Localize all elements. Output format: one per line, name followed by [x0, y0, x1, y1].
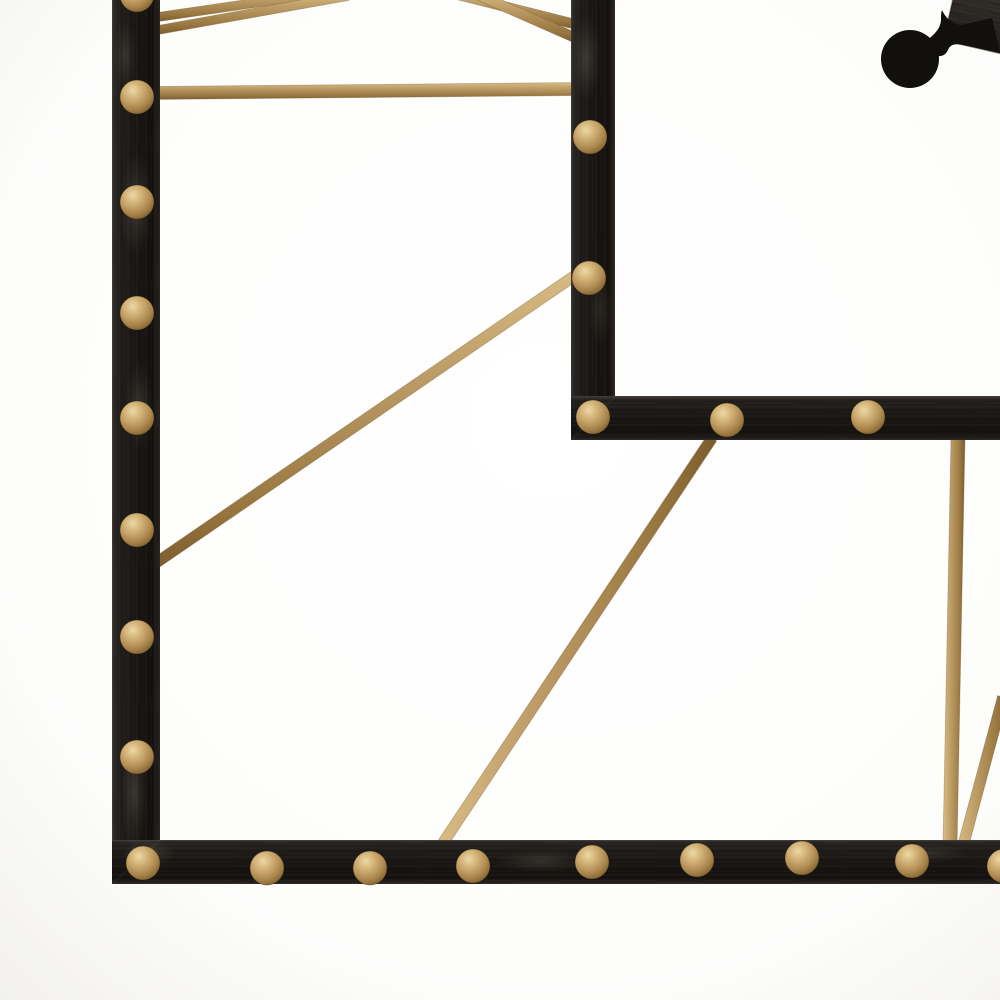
rivet-stud [680, 843, 714, 877]
wear-mark [571, 16, 601, 100]
rivet-stud [576, 400, 610, 434]
rivet-stud [120, 620, 154, 654]
rivet-stud [120, 513, 154, 547]
rivet-stud [353, 851, 387, 885]
rivet-stud [120, 740, 154, 774]
clock-frame-canvas [0, 0, 1000, 1000]
rivet-stud [120, 80, 154, 114]
rivet-stud [120, 185, 154, 219]
rivet-stud [120, 401, 154, 435]
wear-mark [113, 21, 137, 89]
rivet-stud [126, 846, 160, 880]
rivet-stud [851, 400, 885, 434]
clock-hand-counterweight [881, 30, 939, 88]
rivet-stud [573, 120, 607, 154]
inner-horizontal-bar-texture [571, 396, 1000, 440]
rivet-stud [572, 261, 606, 295]
wear-mark [496, 849, 584, 873]
product-photo-stage [0, 0, 1000, 1000]
rivet-stud [785, 841, 819, 875]
rivet-stud [250, 851, 284, 885]
rivet-stud [456, 849, 490, 883]
rivet-stud [895, 844, 929, 878]
wall-clock-photo [0, 0, 1000, 1000]
rivet-stud [710, 403, 744, 437]
rivet-stud [575, 845, 609, 879]
rivet-stud [120, 296, 154, 330]
